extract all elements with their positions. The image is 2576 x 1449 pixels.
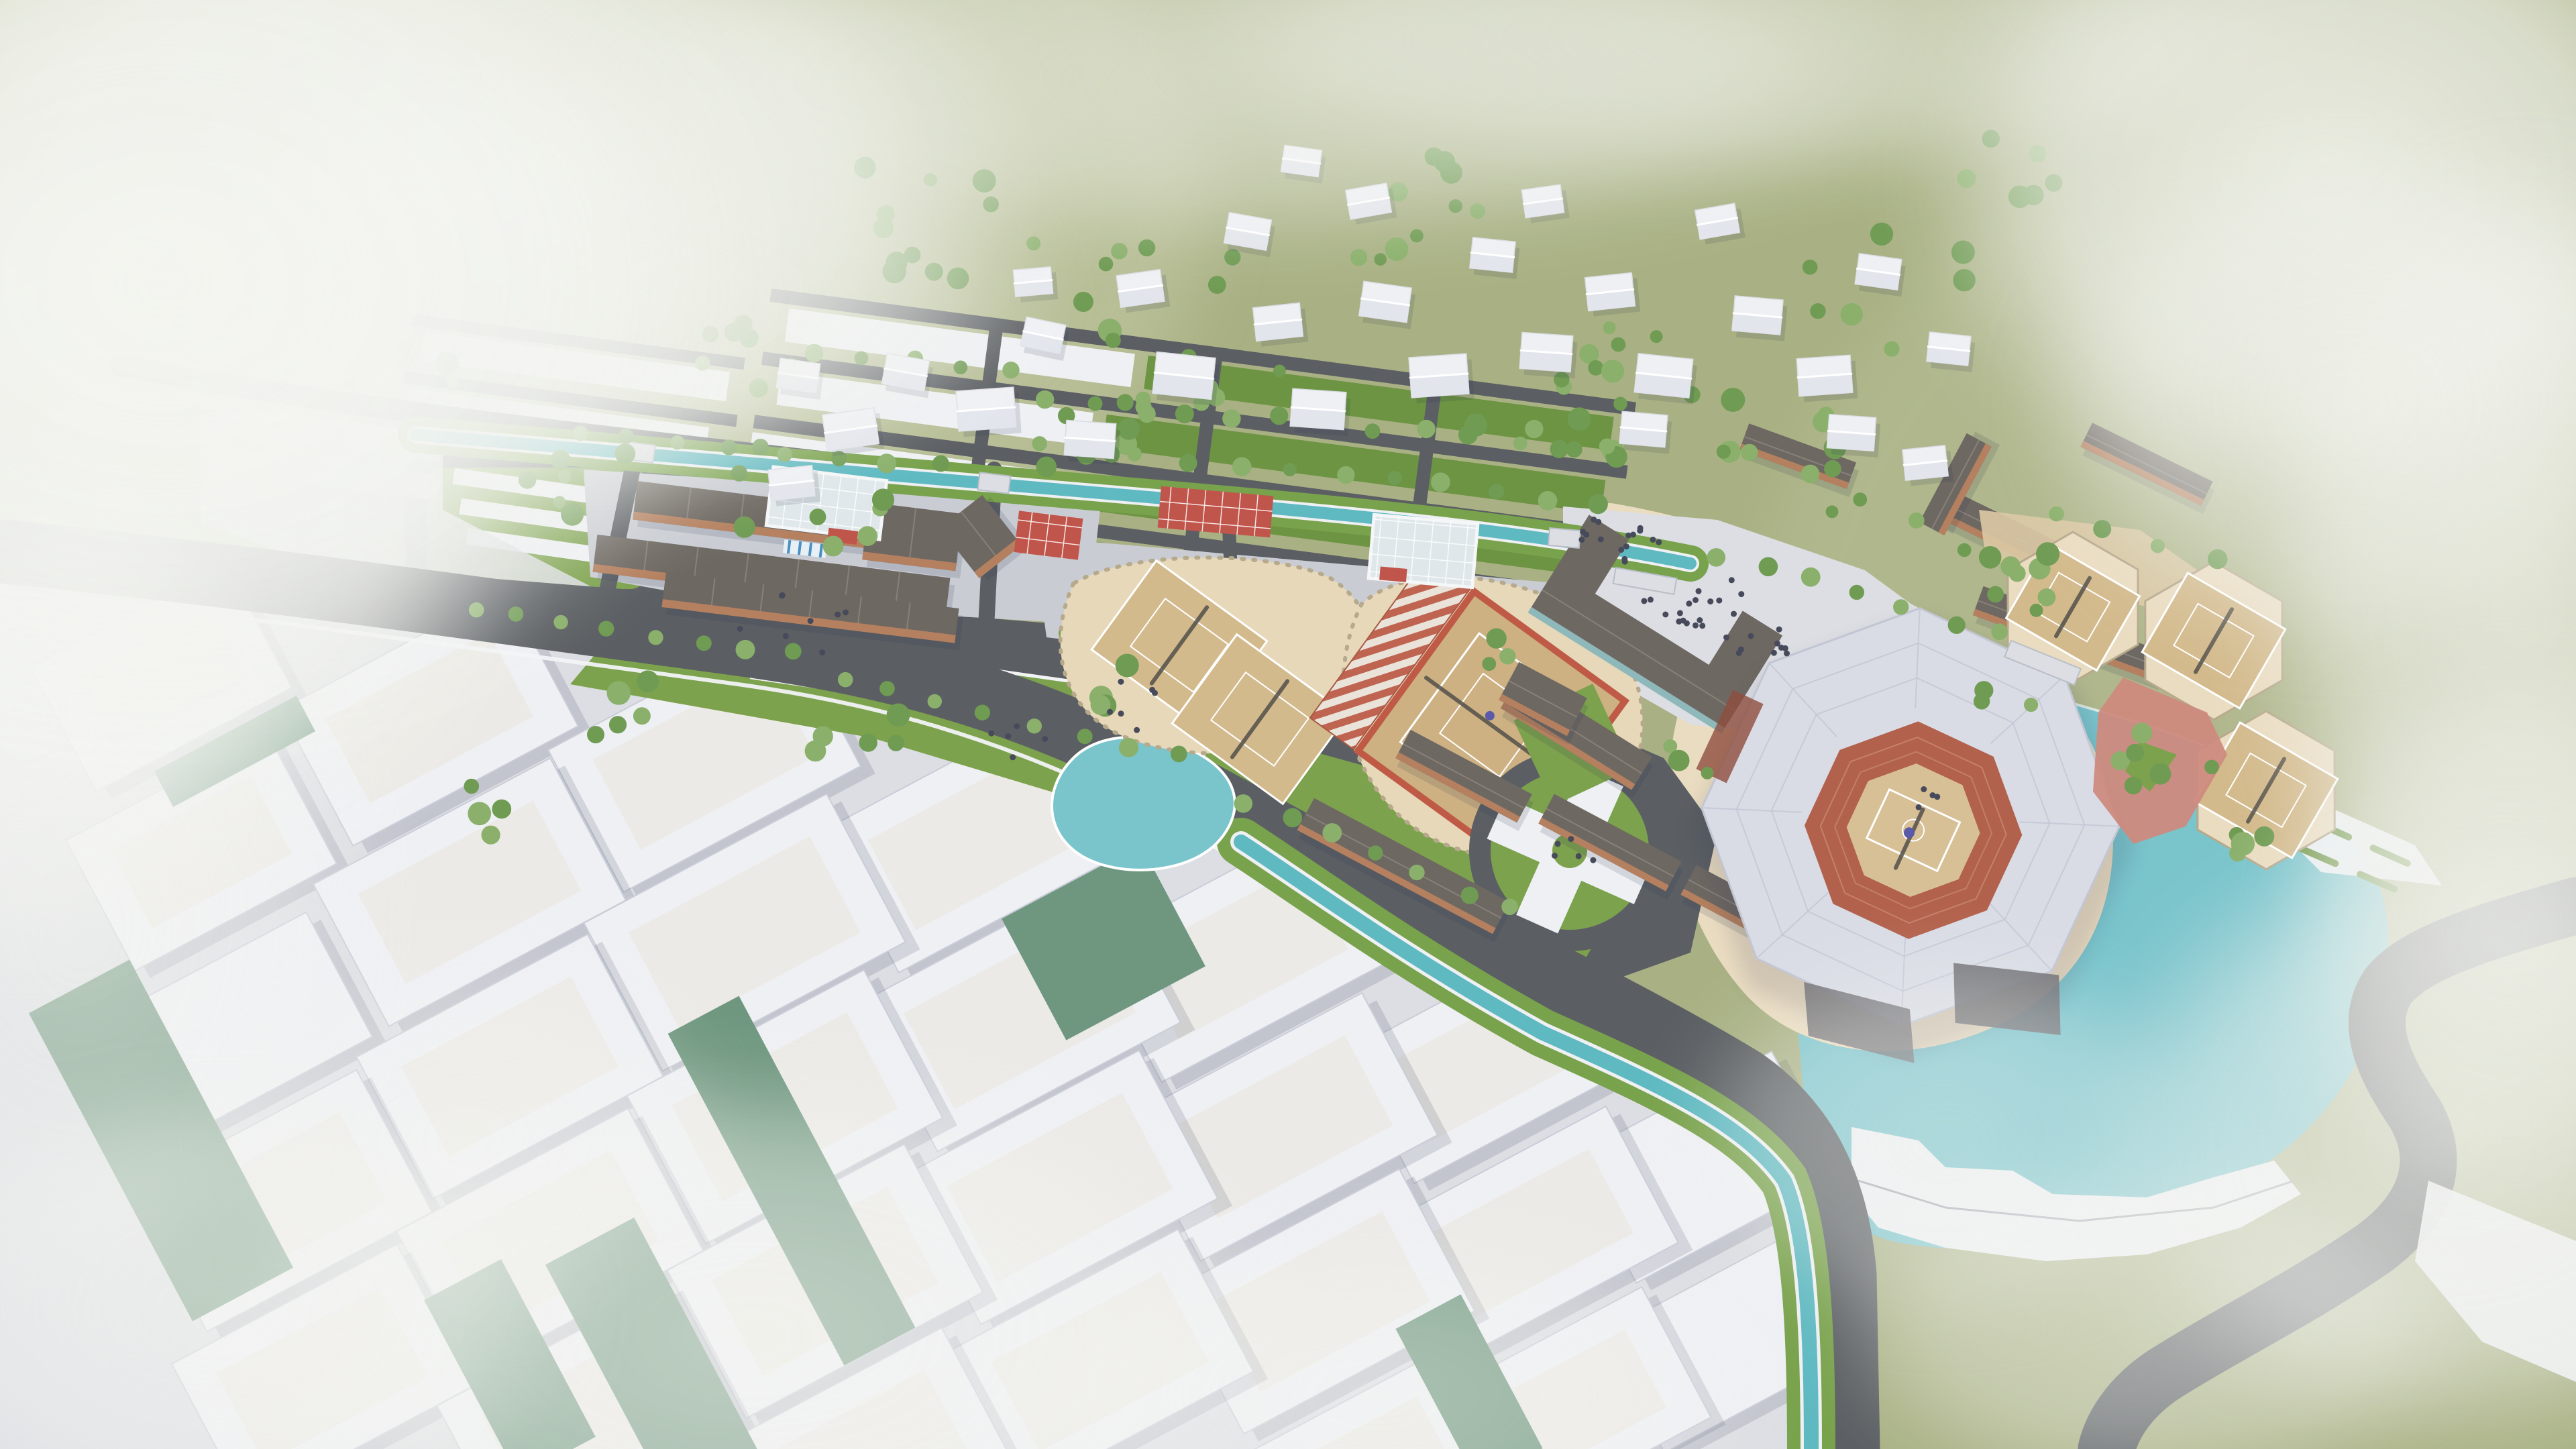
village-house xyxy=(1064,420,1121,465)
person xyxy=(1684,621,1690,627)
tree xyxy=(1368,845,1383,860)
tree xyxy=(1884,341,1899,357)
tree xyxy=(1588,360,1603,376)
person xyxy=(1014,723,1020,729)
person xyxy=(1583,532,1589,538)
person xyxy=(1648,596,1654,602)
tree xyxy=(1979,546,2002,569)
tree xyxy=(1525,420,1543,438)
tree xyxy=(1801,568,1821,587)
person xyxy=(988,731,994,737)
person xyxy=(1118,679,1124,685)
tree xyxy=(1482,657,1496,671)
person xyxy=(808,618,814,624)
tree xyxy=(1077,729,1093,744)
village-house xyxy=(1358,281,1416,329)
tree xyxy=(1550,440,1568,458)
tree xyxy=(736,640,755,659)
red-grid-hall xyxy=(1014,511,1083,559)
tree xyxy=(1099,257,1114,272)
village-house xyxy=(1290,388,1351,436)
tree xyxy=(1388,471,1402,485)
tree xyxy=(1489,484,1504,499)
village-house xyxy=(1619,411,1672,453)
person xyxy=(1934,794,1940,800)
tree xyxy=(1036,457,1057,478)
tree xyxy=(1841,303,1863,325)
tree xyxy=(1036,390,1054,409)
tree xyxy=(823,536,844,557)
tree xyxy=(1487,629,1507,649)
tree xyxy=(932,455,949,472)
tree xyxy=(1501,898,1518,915)
tree xyxy=(2150,763,2171,785)
fog-patch xyxy=(201,939,738,1342)
tree xyxy=(464,779,480,794)
village-house xyxy=(1409,354,1474,404)
person xyxy=(1630,532,1636,538)
tree xyxy=(859,733,877,751)
tree xyxy=(810,508,826,525)
tree xyxy=(887,704,910,727)
tree xyxy=(2008,565,2025,582)
bridge xyxy=(978,472,1011,493)
tree xyxy=(975,705,990,720)
tree xyxy=(1116,654,1139,678)
person xyxy=(1568,836,1574,842)
person xyxy=(1771,650,1777,656)
tree xyxy=(879,681,895,696)
person xyxy=(1697,617,1703,623)
tree xyxy=(1991,623,2008,640)
tree xyxy=(1599,439,1615,455)
tree xyxy=(1117,394,1134,411)
person xyxy=(1637,528,1643,534)
person xyxy=(1598,537,1604,543)
greenhouse xyxy=(1368,515,1478,588)
tree xyxy=(1870,223,1893,246)
tree xyxy=(1801,465,1820,484)
village-house xyxy=(1519,332,1578,378)
tree xyxy=(1588,494,1608,515)
tree xyxy=(1538,491,1558,511)
person xyxy=(1729,577,1735,583)
tree xyxy=(1759,557,1778,577)
tree xyxy=(492,800,511,819)
tree xyxy=(1127,447,1142,462)
tree xyxy=(2125,777,2142,794)
tree xyxy=(2231,832,2255,855)
tree xyxy=(1849,585,1864,600)
person xyxy=(1552,853,1558,859)
person xyxy=(1578,537,1585,543)
tree xyxy=(1171,746,1187,763)
person xyxy=(1776,627,1782,633)
tree xyxy=(1458,425,1478,445)
person xyxy=(1118,710,1124,716)
tree xyxy=(1431,472,1450,492)
tree xyxy=(1283,463,1297,476)
tree xyxy=(1136,399,1152,415)
village-house xyxy=(1731,296,1788,341)
tree xyxy=(1824,460,1841,478)
person xyxy=(1134,727,1140,733)
person xyxy=(1623,543,1629,549)
tree xyxy=(2254,826,2274,847)
tree xyxy=(813,726,833,746)
tree xyxy=(2036,542,2059,566)
tree xyxy=(1118,418,1140,440)
person xyxy=(1738,647,1744,653)
person xyxy=(1042,736,1048,742)
tree xyxy=(1234,794,1253,813)
tree xyxy=(1270,407,1288,425)
tree xyxy=(838,672,853,688)
tree xyxy=(1650,330,1663,343)
tree xyxy=(1179,454,1197,472)
village-house xyxy=(1633,354,1698,405)
tree xyxy=(1717,445,1731,459)
tree xyxy=(637,670,659,692)
tree xyxy=(1461,887,1479,904)
tree xyxy=(1322,823,1342,843)
person xyxy=(1699,623,1705,629)
person xyxy=(1778,645,1784,651)
tree xyxy=(1611,337,1626,352)
person xyxy=(1696,588,1702,594)
tree xyxy=(1613,397,1627,411)
person xyxy=(1595,519,1601,525)
tree xyxy=(598,621,614,637)
tree xyxy=(2204,760,2219,775)
tree xyxy=(1106,333,1121,348)
tree xyxy=(1803,260,1818,275)
tree xyxy=(1987,586,2004,603)
tree xyxy=(696,635,712,651)
tree xyxy=(1232,457,1252,476)
tree xyxy=(1974,681,1993,700)
person xyxy=(1152,690,1158,696)
person xyxy=(1686,600,1692,606)
person xyxy=(1641,598,1647,604)
tree xyxy=(1409,865,1424,880)
person xyxy=(1555,841,1561,847)
person xyxy=(1005,733,1011,739)
tree xyxy=(1810,303,1825,319)
person xyxy=(1107,709,1113,715)
person xyxy=(783,633,789,639)
person xyxy=(1716,598,1722,604)
tree xyxy=(785,643,802,660)
tree xyxy=(2024,698,2038,712)
tree xyxy=(1073,292,1093,312)
tree xyxy=(1721,388,1745,412)
tree xyxy=(1668,750,1690,771)
tree xyxy=(1175,405,1194,423)
person xyxy=(1748,633,1754,639)
tree xyxy=(1222,409,1241,428)
tree xyxy=(1957,543,1972,557)
person xyxy=(1650,537,1656,543)
tree xyxy=(468,802,491,825)
tree xyxy=(1032,436,1047,451)
tree xyxy=(607,681,631,705)
tree xyxy=(2038,588,2056,606)
person xyxy=(1784,651,1790,657)
tree xyxy=(1853,492,1867,506)
tree xyxy=(1566,441,1582,458)
tree xyxy=(1909,513,1925,529)
tree xyxy=(1088,396,1103,411)
person xyxy=(1738,591,1744,597)
tree xyxy=(1499,648,1515,664)
tree xyxy=(928,694,942,708)
tree xyxy=(1208,276,1226,294)
village-house xyxy=(1253,303,1309,347)
tree xyxy=(2131,722,2152,743)
tree xyxy=(1283,808,1303,828)
person xyxy=(1693,597,1699,603)
tree xyxy=(857,526,877,546)
person xyxy=(1576,853,1582,859)
fog-patch xyxy=(1664,939,2227,1342)
tree xyxy=(2126,744,2144,762)
tree xyxy=(1603,321,1616,334)
person xyxy=(1656,539,1662,545)
masterplan-render: Aerial 3D architectural masterplan rende… xyxy=(0,0,2576,1449)
tree xyxy=(1273,365,1286,378)
tree xyxy=(2030,604,2043,617)
tree xyxy=(1119,738,1138,757)
village-house xyxy=(1152,352,1220,407)
tree xyxy=(587,726,604,743)
tree xyxy=(1707,548,1726,567)
village-house xyxy=(1116,269,1170,314)
tree xyxy=(1365,423,1381,439)
person xyxy=(1731,611,1737,617)
tree xyxy=(1893,599,1909,614)
bridge xyxy=(1548,528,1580,548)
tree xyxy=(609,716,627,733)
tree xyxy=(1417,420,1435,438)
person xyxy=(737,626,743,632)
tree xyxy=(1374,253,1387,266)
village-house xyxy=(1585,272,1641,317)
tree xyxy=(1701,767,1714,780)
village-house xyxy=(1854,254,1907,297)
person xyxy=(1916,804,1922,810)
person xyxy=(1693,623,1699,629)
tree xyxy=(734,517,755,538)
tree xyxy=(1027,718,1042,733)
person xyxy=(843,609,849,615)
tree xyxy=(482,826,500,845)
person xyxy=(1677,610,1683,616)
village-house xyxy=(1796,355,1858,402)
person xyxy=(1723,635,1729,641)
tree xyxy=(872,488,894,511)
tree xyxy=(633,707,651,724)
person xyxy=(780,592,786,598)
village-house xyxy=(1827,415,1881,458)
person xyxy=(1622,559,1628,565)
tree xyxy=(1513,437,1527,451)
tree xyxy=(1568,407,1591,431)
person xyxy=(1707,598,1713,604)
tree xyxy=(877,453,896,473)
person xyxy=(1618,547,1624,553)
tree xyxy=(1948,616,1966,634)
tree xyxy=(1826,505,1839,518)
person xyxy=(1590,857,1596,863)
person xyxy=(1662,612,1668,618)
person xyxy=(819,649,825,655)
tree xyxy=(1741,444,1758,461)
person xyxy=(1010,754,1016,760)
tree xyxy=(1337,466,1354,484)
tree xyxy=(648,630,663,645)
person xyxy=(1676,619,1682,625)
village-house xyxy=(1902,445,1953,486)
tree xyxy=(888,735,904,751)
person xyxy=(1921,786,1927,792)
tree xyxy=(1601,360,1624,382)
person xyxy=(835,612,841,618)
